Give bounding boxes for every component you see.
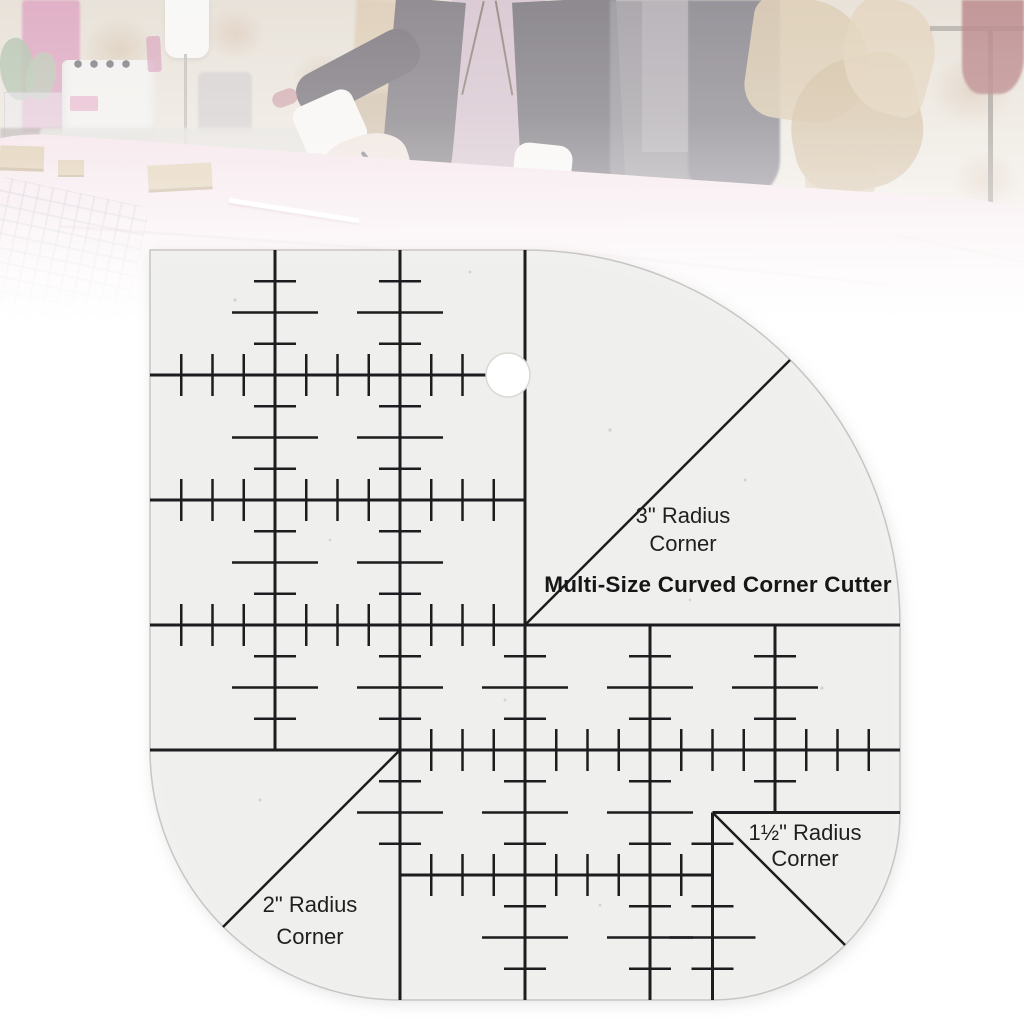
corner-cutter-ruler: 3" Radius Corner Multi-Size Curved Corne… [0, 0, 1024, 1024]
radius-3-label-line2: Corner [649, 531, 716, 556]
product-title: Multi-Size Curved Corner Cutter [544, 572, 892, 597]
radius-1-5-label-line1: 1½" Radius [749, 820, 862, 845]
radius-2-label-line2: Corner [276, 924, 343, 949]
product-photo: 3" Radius Corner Multi-Size Curved Corne… [0, 0, 1024, 1024]
radius-2-label-line1: 2" Radius [263, 892, 358, 917]
radius-3-label-line1: 3" Radius [636, 503, 731, 528]
radius-1-5-label-line2: Corner [771, 846, 838, 871]
hanging-hole [486, 353, 530, 397]
